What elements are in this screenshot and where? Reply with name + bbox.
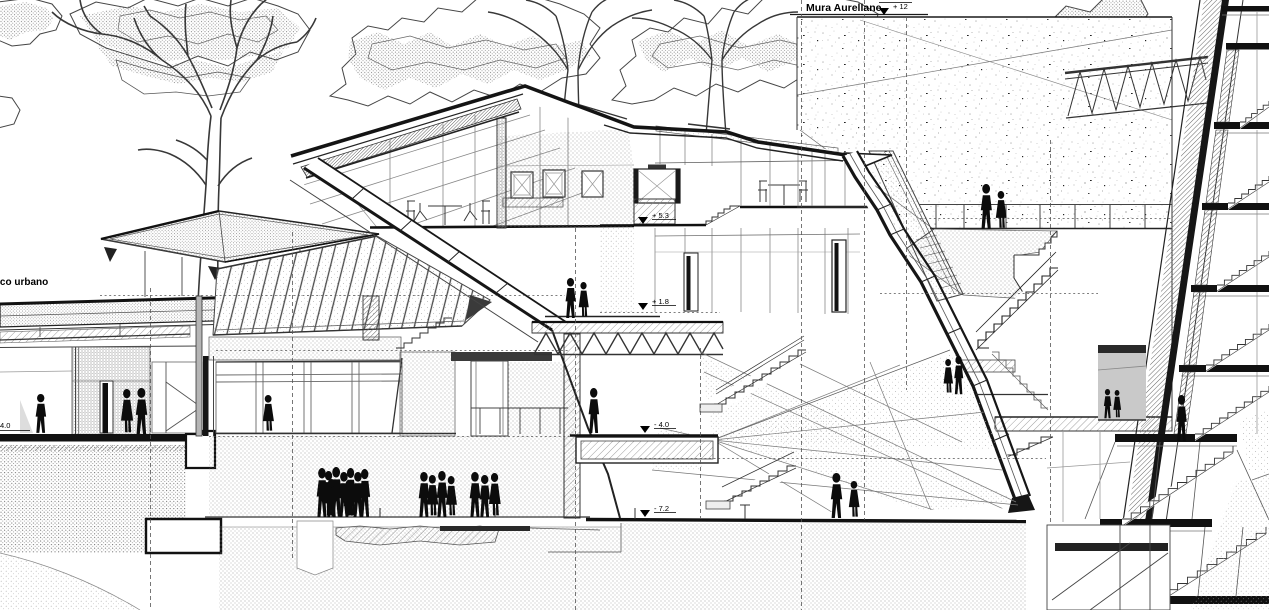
svg-text:+ 1.8: + 1.8 [652,297,669,306]
svg-text:rco urbano: rco urbano [0,277,48,288]
svg-text:- 4.0: - 4.0 [654,420,669,429]
svg-text:4.0: 4.0 [0,421,10,430]
svg-text:+ 12: + 12 [893,2,908,11]
svg-text:+ 5.3: + 5.3 [652,211,669,220]
svg-text:- 7.2: - 7.2 [654,504,669,513]
svg-text:Mura Aurellane: Mura Aurellane [806,2,882,14]
